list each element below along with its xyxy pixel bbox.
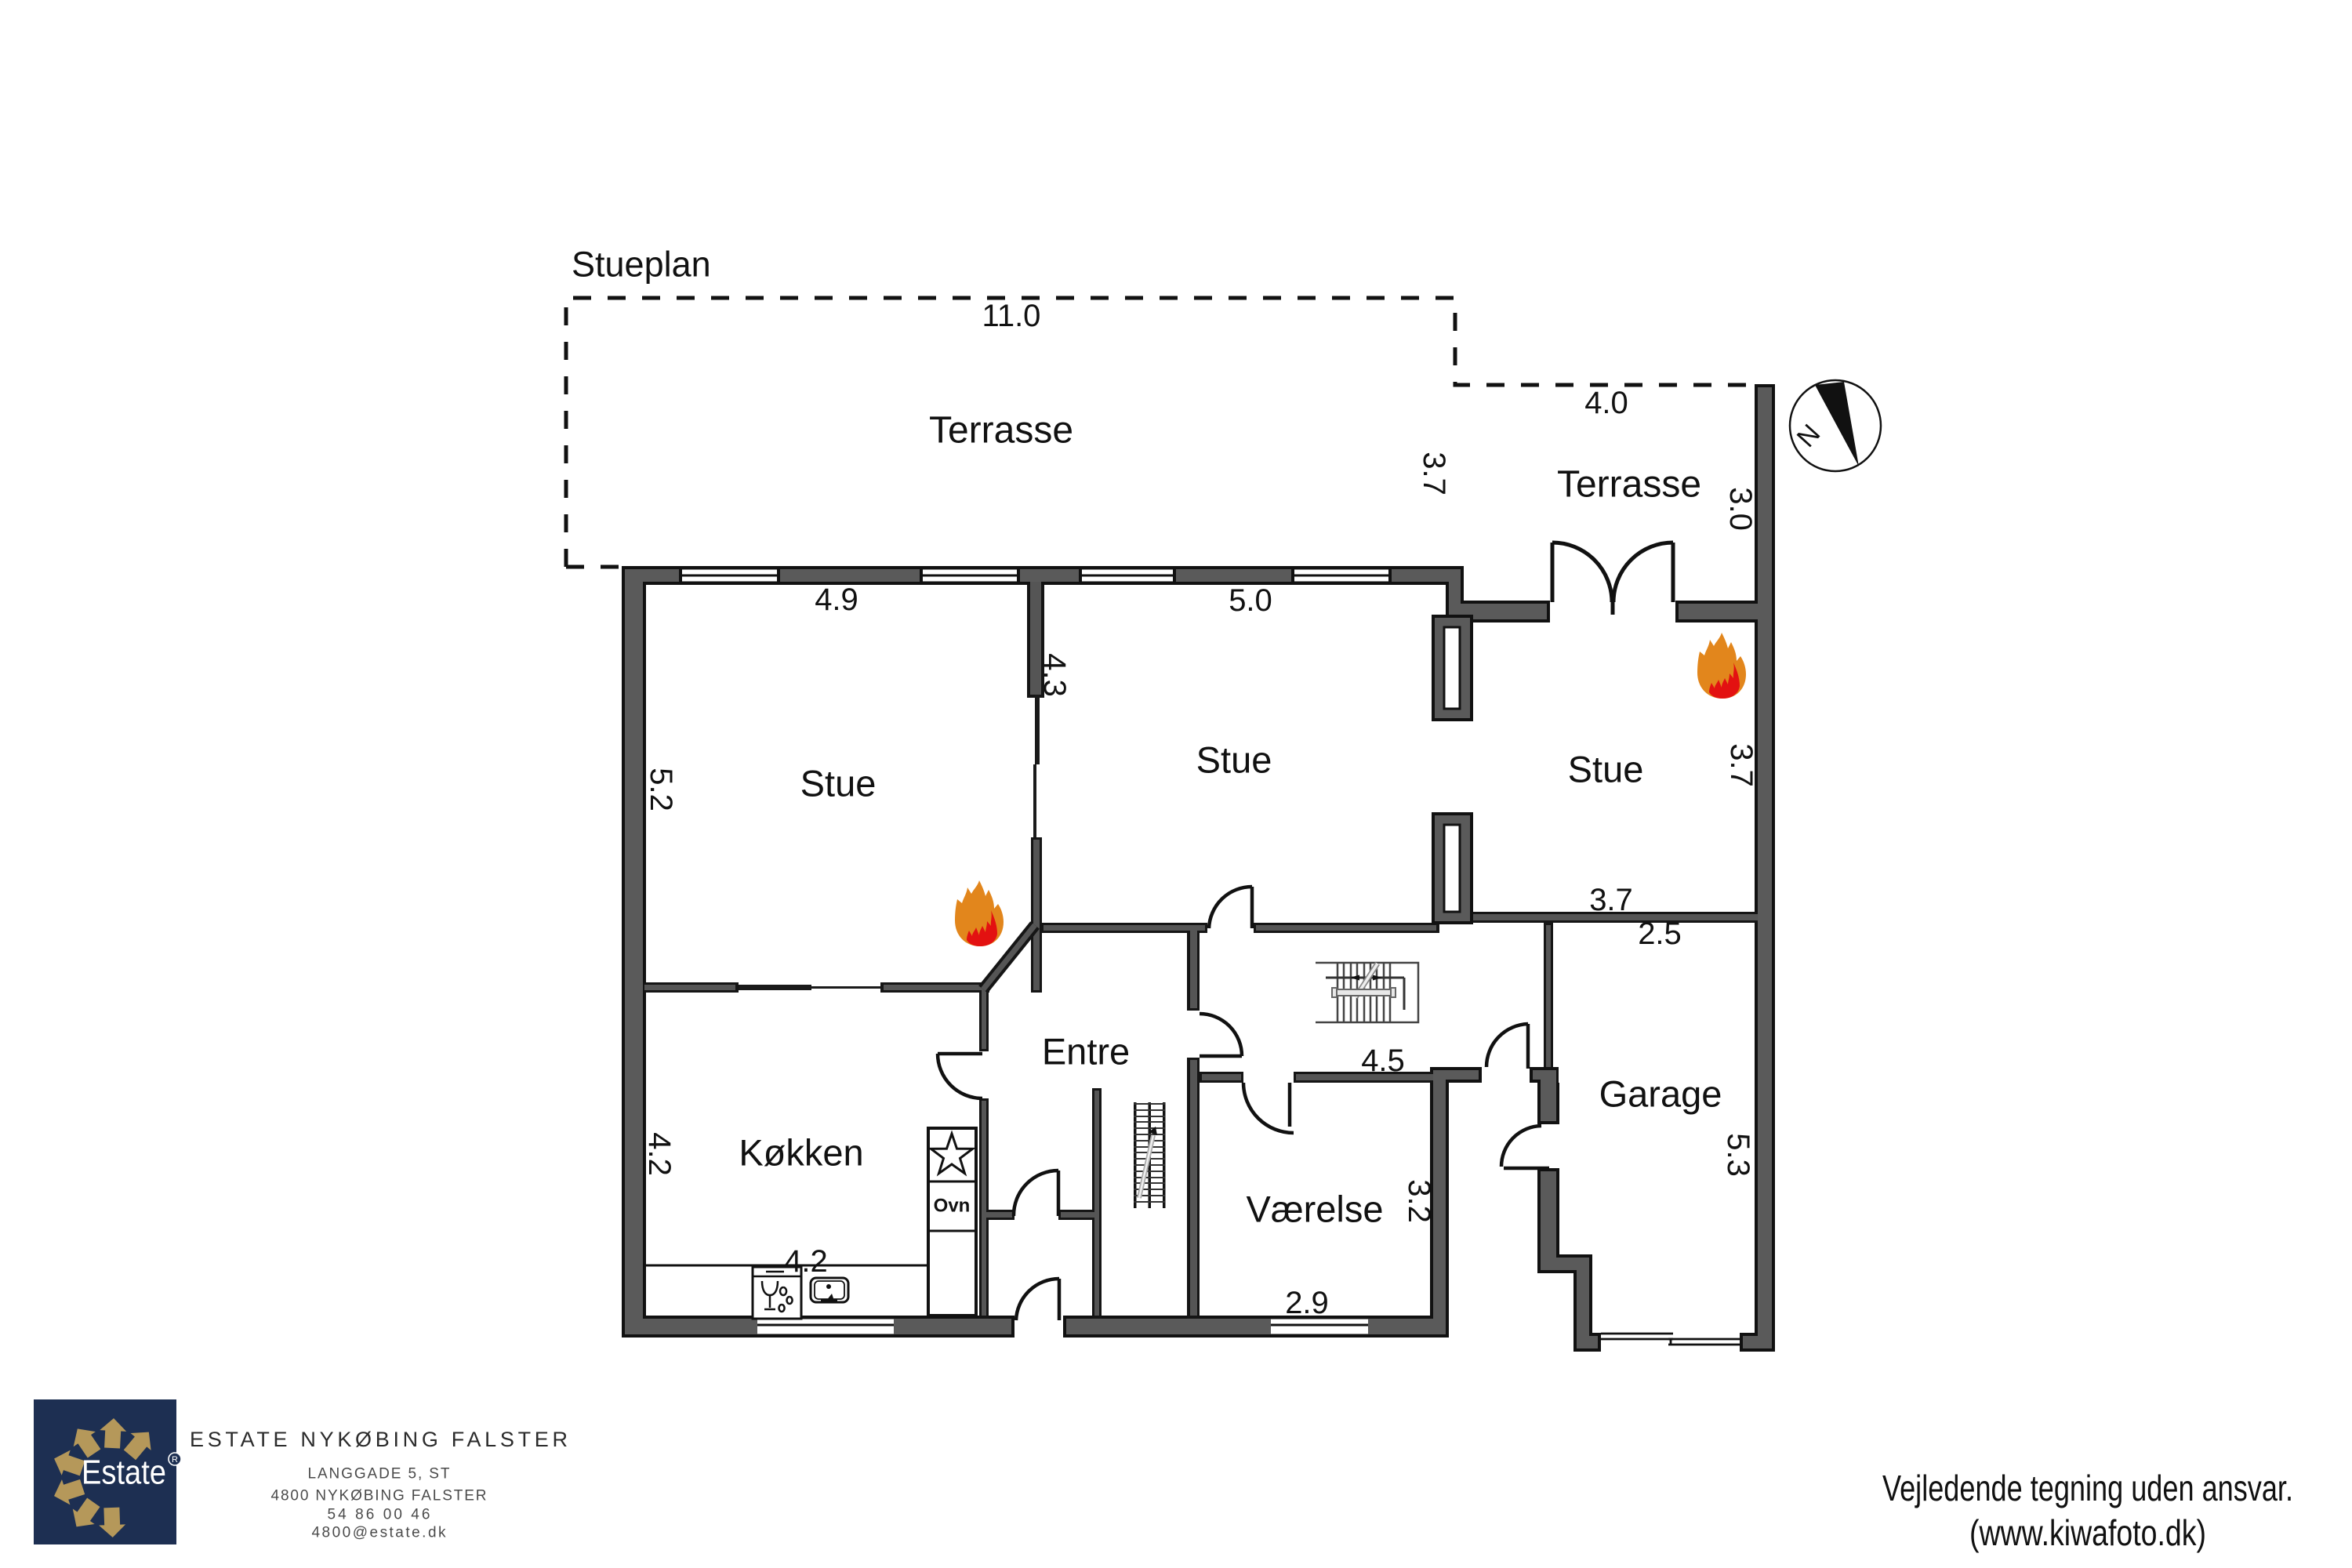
svg-text:ESTATE NYKØBING FALSTER: ESTATE NYKØBING FALSTER [190, 1428, 568, 1451]
svg-text:4.9: 4.9 [815, 583, 858, 617]
svg-text:Køkken: Køkken [739, 1132, 863, 1174]
svg-text:5.0: 5.0 [1229, 583, 1272, 618]
svg-text:3.2: 3.2 [1402, 1179, 1436, 1223]
svg-text:5.2: 5.2 [644, 768, 678, 811]
svg-text:Stue: Stue [1196, 739, 1272, 781]
svg-text:4.2: 4.2 [784, 1244, 828, 1279]
svg-text:Stue: Stue [800, 763, 877, 804]
svg-text:11.0: 11.0 [982, 299, 1041, 333]
svg-text:5.3: 5.3 [1721, 1133, 1755, 1177]
svg-text:2.5: 2.5 [1638, 916, 1682, 951]
svg-text:Estate: Estate [82, 1454, 166, 1492]
svg-text:3.7: 3.7 [1724, 743, 1759, 787]
svg-text:4.5: 4.5 [1361, 1044, 1405, 1078]
svg-text:Terrasse: Terrasse [1557, 464, 1701, 506]
svg-text:Stue: Stue [1568, 749, 1644, 790]
svg-text:3.7: 3.7 [1417, 452, 1451, 495]
svg-text:Terrasse: Terrasse [929, 410, 1073, 452]
svg-text:4.3: 4.3 [1037, 653, 1072, 697]
svg-text:Ovn: Ovn [934, 1196, 971, 1217]
svg-text:Værelse: Værelse [1246, 1189, 1383, 1230]
svg-text:Stueplan: Stueplan [572, 245, 711, 285]
svg-text:4.0: 4.0 [1584, 386, 1628, 420]
svg-text:2.9: 2.9 [1285, 1286, 1329, 1320]
svg-text:Garage: Garage [1599, 1073, 1722, 1115]
svg-text:4800 NYKØBING FALSTER: 4800 NYKØBING FALSTER [271, 1488, 487, 1504]
svg-text:54 86 00 46: 54 86 00 46 [328, 1507, 430, 1523]
svg-text:3.0: 3.0 [1723, 487, 1758, 531]
svg-text:Entre: Entre [1042, 1031, 1130, 1073]
svg-text:R: R [172, 1455, 178, 1465]
svg-text:(www.kiwafoto.dk): (www.kiwafoto.dk) [1969, 1512, 2206, 1553]
svg-text:4.2: 4.2 [642, 1132, 677, 1176]
svg-text:LANGGADE 5, ST: LANGGADE 5, ST [308, 1466, 450, 1483]
svg-text:Vejledende tegning uden ansvar: Vejledende tegning uden ansvar. [1882, 1468, 2293, 1508]
svg-text:3.7: 3.7 [1589, 883, 1633, 917]
